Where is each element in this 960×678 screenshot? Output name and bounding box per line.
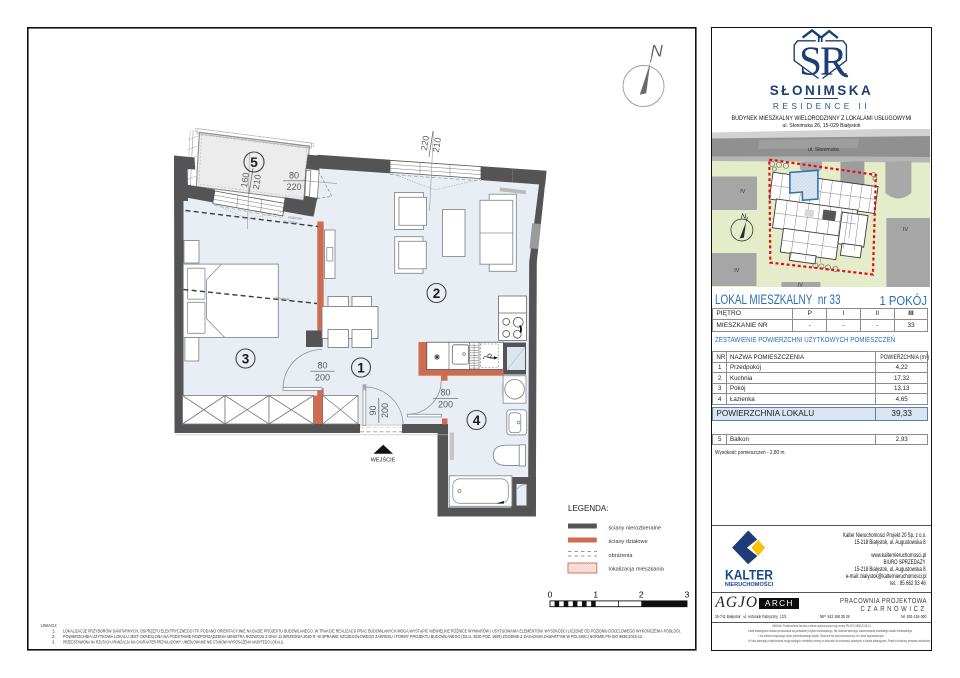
svg-text:200: 200: [380, 403, 390, 418]
svg-text:3: 3: [685, 589, 690, 599]
svg-text:5: 5: [250, 155, 258, 170]
svg-text:NIERUCHOMOŚCI: NIERUCHOMOŚCI: [725, 581, 774, 587]
svg-text:2: 2: [433, 286, 441, 301]
svg-text:obniżenia: obniżenia: [609, 553, 634, 559]
svg-text:WEJŚCIE: WEJŚCIE: [371, 456, 396, 464]
svg-text:LEGENDA:: LEGENDA:: [568, 504, 608, 513]
svg-text:PRZEDSTAWIONA NA RZUTACH ARANŻ: PRZEDSTAWIONA NA RZUTACH ARANŻACJA MA CH…: [63, 640, 284, 645]
svg-text:80: 80: [289, 171, 299, 181]
svg-text:LOKALIZACJE PRZYBORÓW SANITARN: LOKALIZACJE PRZYBORÓW SANITARNYCH, OSPRZ…: [63, 629, 681, 634]
svg-text:N: N: [741, 212, 747, 221]
svg-text:3.: 3.: [52, 640, 56, 645]
svg-text:IV: IV: [734, 268, 740, 274]
svg-text:IV: IV: [740, 189, 746, 195]
svg-text:3: 3: [242, 351, 250, 366]
svg-text:2.: 2.: [52, 634, 56, 639]
svg-text:IV: IV: [903, 227, 909, 233]
svg-text:N: N: [651, 42, 664, 61]
svg-text:ściany działowe: ściany działowe: [609, 539, 648, 545]
svg-text:200: 200: [315, 373, 330, 383]
svg-text:R: R: [820, 38, 848, 84]
svg-text:1.: 1.: [52, 629, 56, 634]
svg-text:ul. Słonimska: ul. Słonimska: [808, 147, 839, 153]
svg-text:ściany nierozbieralne: ściany nierozbieralne: [609, 526, 662, 532]
svg-text:2: 2: [639, 589, 644, 599]
svg-text:S: S: [799, 38, 822, 84]
svg-text:80: 80: [317, 361, 327, 371]
svg-text:UWAGI:: UWAGI:: [41, 623, 58, 628]
svg-text:POWIERZCHNIA UŻYTKOWA LOKALU J: POWIERZCHNIA UŻYTKOWA LOKALU JEST OKREŚL…: [63, 634, 643, 639]
svg-text:lokalizacja mieszkania: lokalizacja mieszkania: [609, 567, 665, 573]
svg-text:1: 1: [593, 589, 598, 599]
svg-text:200: 200: [438, 400, 453, 410]
svg-text:KALTER: KALTER: [725, 568, 773, 583]
svg-text:80: 80: [440, 388, 450, 398]
svg-text:IV: IV: [798, 283, 804, 288]
svg-text:1: 1: [357, 360, 365, 375]
svg-text:90: 90: [368, 405, 378, 415]
svg-text:220: 220: [286, 182, 301, 192]
svg-text:4: 4: [473, 413, 481, 428]
svg-text:0: 0: [548, 589, 553, 599]
